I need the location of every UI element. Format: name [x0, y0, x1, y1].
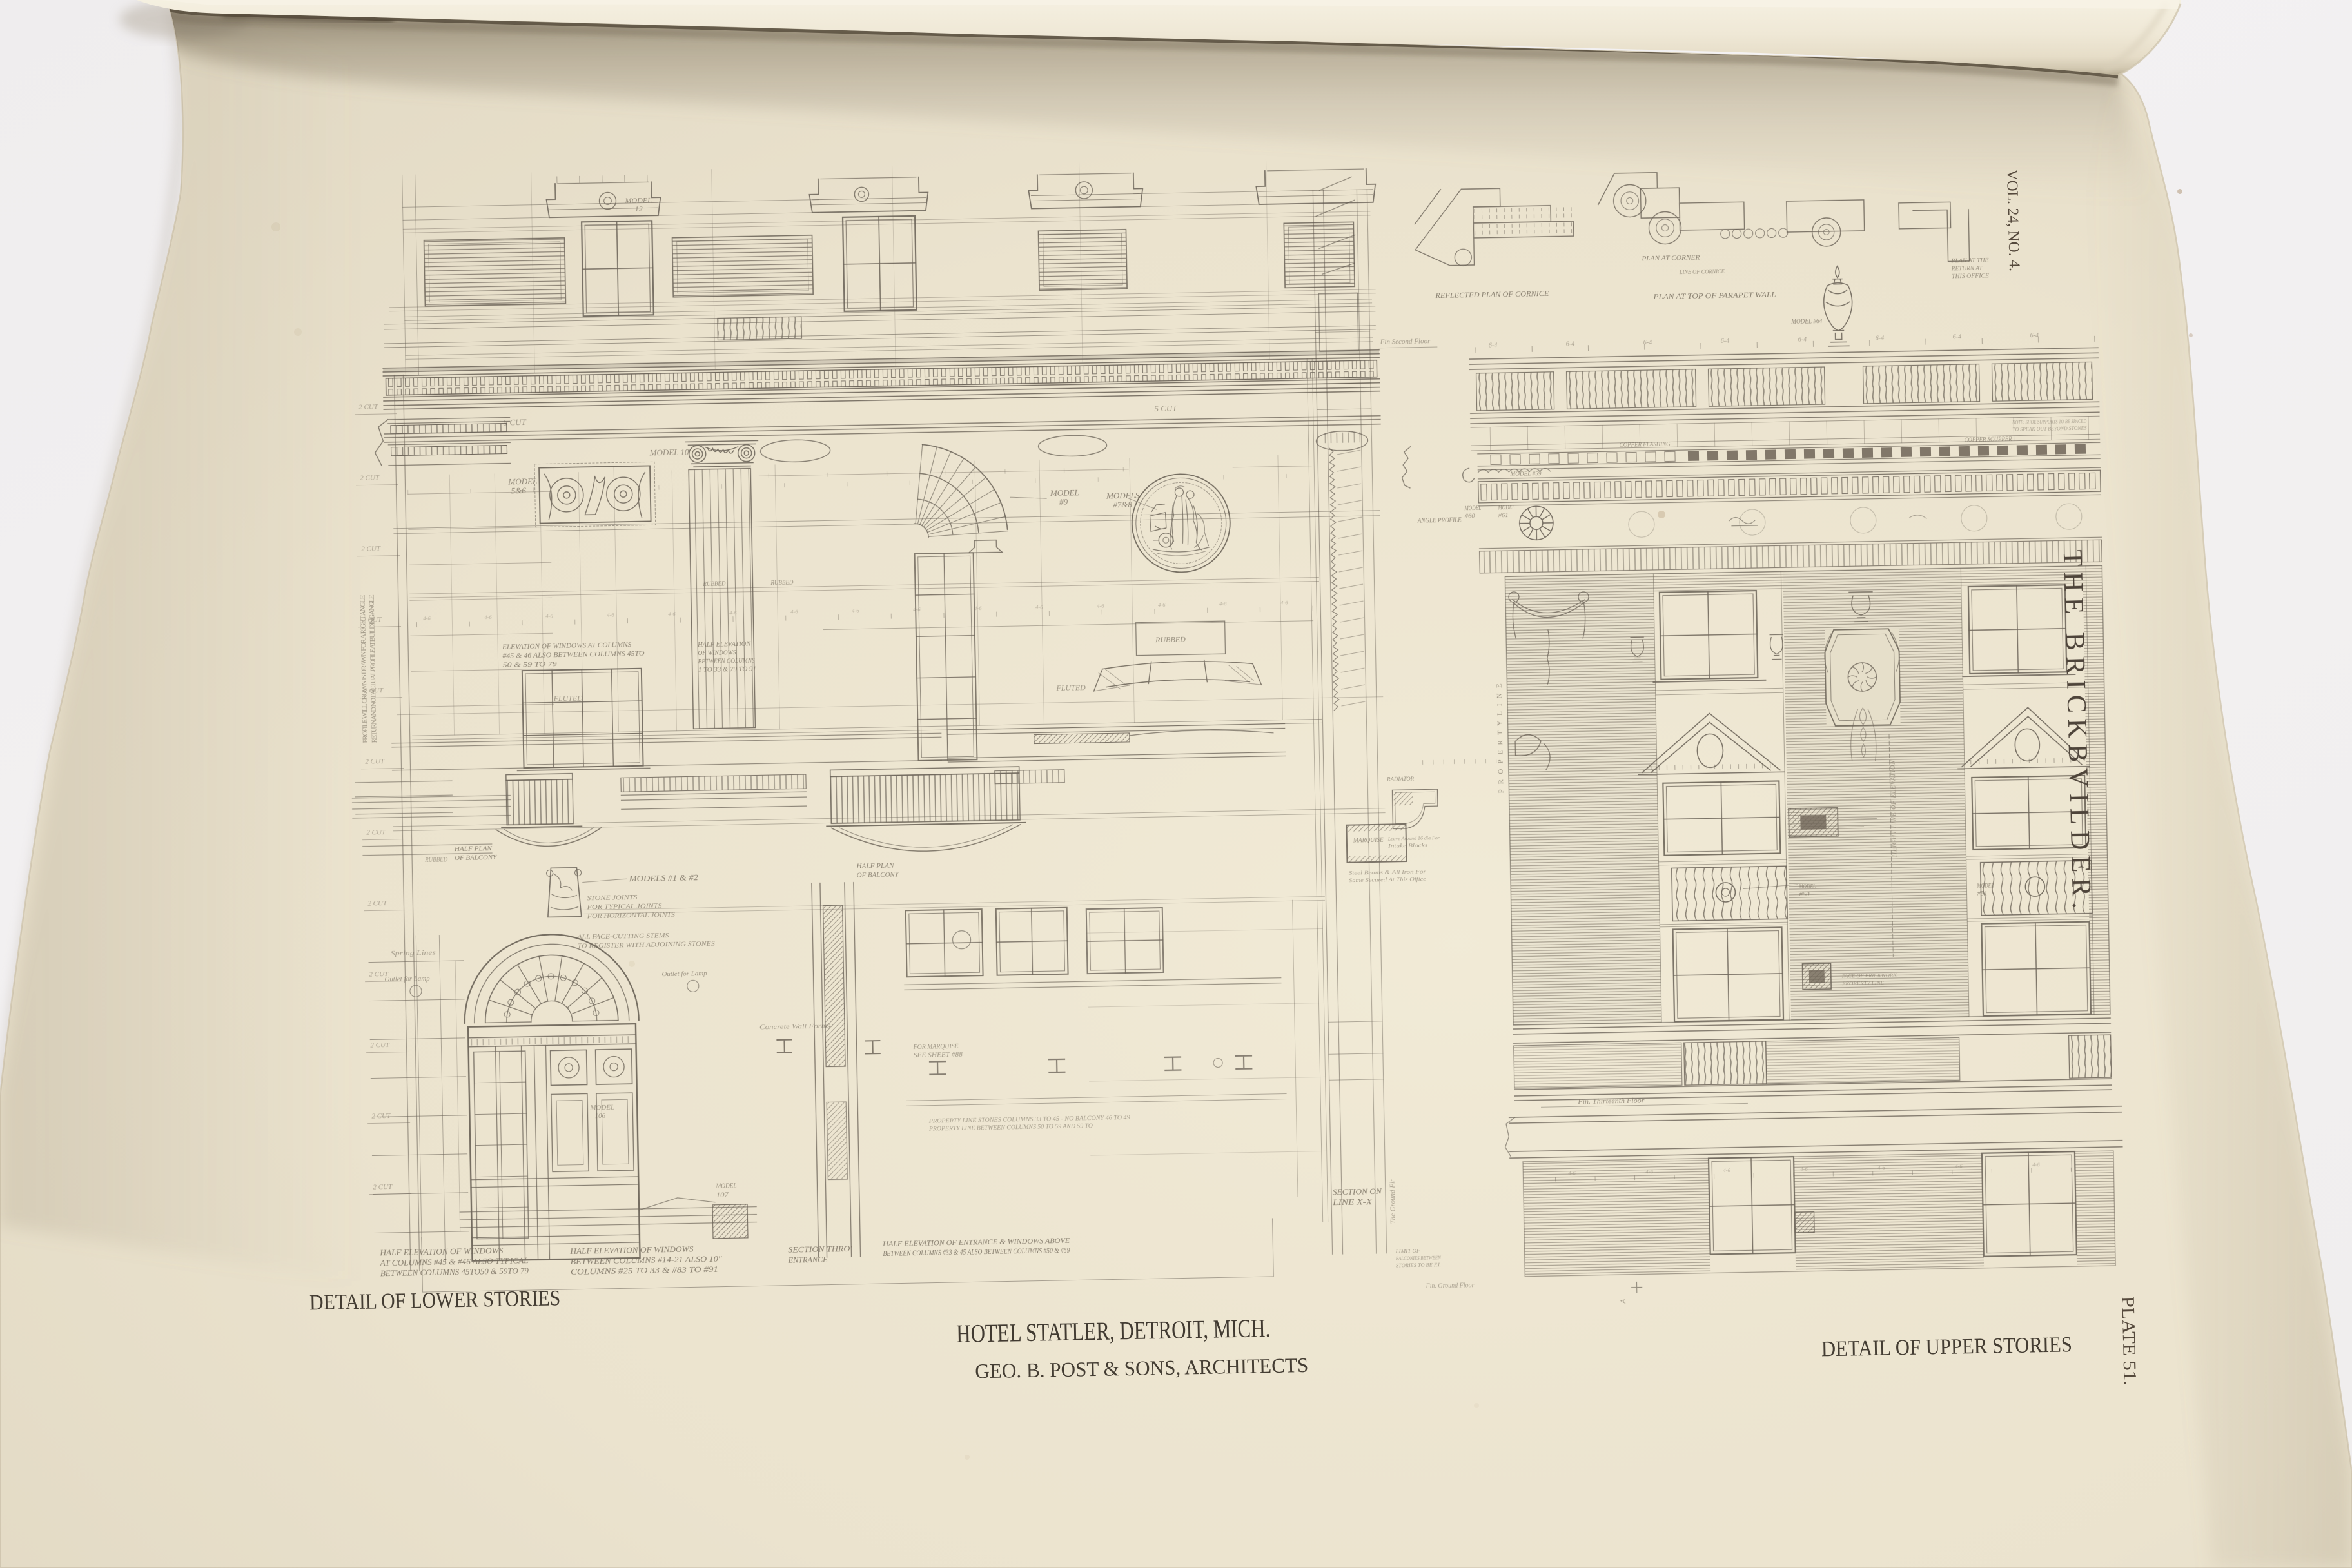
- svg-text:6-4: 6-4: [2030, 332, 2039, 339]
- svg-text:A: A: [1618, 1298, 1627, 1304]
- svg-text:2 CUT: 2 CUT: [373, 1183, 393, 1191]
- svg-text:4-6: 4-6: [1568, 1170, 1576, 1176]
- svg-text:BALCONIES BETWEEN: BALCONIES BETWEEN: [1396, 1255, 1442, 1261]
- svg-text:STONE JOINTS: STONE JOINTS: [587, 894, 638, 902]
- svg-text:ENTRANCE: ENTRANCE: [788, 1255, 828, 1265]
- svg-text:MARQUISE: MARQUISE: [1353, 837, 1384, 845]
- svg-text:RUBBED: RUBBED: [702, 580, 726, 588]
- svg-text:6-4: 6-4: [1953, 333, 1962, 340]
- svg-text:5&6: 5&6: [511, 485, 527, 495]
- svg-text:Leave Around 16 dia For: Leave Around 16 dia For: [1387, 835, 1440, 841]
- svg-text:RUBBED: RUBBED: [770, 579, 794, 587]
- svg-text:MODEL #59: MODEL #59: [1509, 470, 1542, 477]
- svg-text:PLAN AT THE: PLAN AT THE: [1950, 257, 1989, 264]
- svg-text:FLUTED: FLUTED: [553, 693, 583, 703]
- svg-text:4-6: 4-6: [729, 609, 737, 616]
- svg-text:4-6: 4-6: [484, 614, 492, 620]
- svg-text:OF WINDOWS: OF WINDOWS: [698, 649, 736, 657]
- svg-text:MODELS #1 & #2: MODELS #1 & #2: [629, 872, 699, 883]
- svg-text:FACE OF BRICKWORK: FACE OF BRICKWORK: [1841, 972, 1898, 979]
- svg-text:6-4: 6-4: [1798, 337, 1807, 344]
- svg-text:4-6: 4-6: [1645, 1168, 1653, 1175]
- svg-text:#51: #51: [1977, 890, 1987, 897]
- svg-text:LINE OF CORNICE: LINE OF CORNICE: [1679, 268, 1725, 275]
- svg-text:ANGLE PROFILE: ANGLE PROFILE: [1417, 516, 1462, 524]
- svg-text:SEE SHEET #88: SEE SHEET #88: [914, 1052, 963, 1059]
- svg-text:MODEL: MODEL: [1464, 505, 1482, 511]
- svg-text:MODEL: MODEL: [1798, 883, 1816, 889]
- svg-text:OF BALCONY: OF BALCONY: [857, 870, 900, 879]
- svg-text:MODEL: MODEL: [589, 1104, 614, 1112]
- svg-text:5 CUT: 5 CUT: [1154, 403, 1177, 413]
- svg-text:4-6: 4-6: [913, 606, 921, 612]
- svg-text:HALF PLAN: HALF PLAN: [856, 862, 894, 870]
- svg-text:2 CUT: 2 CUT: [367, 899, 387, 908]
- svg-text:DETAIL OF LOWER STORIES: DETAIL OF LOWER STORIES: [309, 1286, 561, 1315]
- svg-text:4-6: 4-6: [1280, 599, 1288, 605]
- svg-text:OF BALCONY: OF BALCONY: [455, 854, 498, 862]
- svg-text:2 CUT: 2 CUT: [365, 758, 385, 766]
- svg-text:2 CUT: 2 CUT: [360, 474, 380, 482]
- svg-text:PLATE 51.: PLATE 51.: [2117, 1296, 2140, 1386]
- svg-text:MODEL: MODEL: [1498, 504, 1515, 511]
- svg-text:#50: #50: [1799, 891, 1810, 897]
- svg-text:VOL. 24, NO. 4.: VOL. 24, NO. 4.: [2003, 170, 2023, 272]
- svg-text:4-6: 4-6: [974, 605, 982, 611]
- svg-text:Fin. Thirteenth Floor: Fin. Thirteenth Floor: [1577, 1095, 1645, 1106]
- svg-text:RUBBED: RUBBED: [424, 856, 448, 864]
- svg-text:4-6: 4-6: [545, 612, 553, 619]
- svg-text:LINE X-X: LINE X-X: [1332, 1197, 1373, 1207]
- svg-text:THIS OFFICE: THIS OFFICE: [1952, 272, 1990, 279]
- svg-text:4-6: 4-6: [607, 611, 614, 618]
- svg-text:The Ground Flr: The Ground Flr: [1388, 1179, 1396, 1224]
- svg-text:4-6: 4-6: [423, 615, 431, 622]
- svg-text:FLUTED: FLUTED: [1055, 683, 1086, 692]
- svg-text:6-4: 6-4: [1643, 339, 1652, 346]
- svg-text:4-6: 4-6: [2032, 1161, 2040, 1168]
- svg-text:#61: #61: [1498, 512, 1509, 518]
- svg-text:4-6: 4-6: [1877, 1164, 1885, 1171]
- svg-text:6-4: 6-4: [1721, 338, 1730, 345]
- svg-text:12: 12: [635, 204, 643, 213]
- svg-text:MODEL: MODEL: [716, 1182, 737, 1190]
- svg-text:1 TO 33 & 79 TO 91: 1 TO 33 & 79 TO 91: [698, 665, 756, 674]
- svg-text:4-6: 4-6: [790, 608, 798, 614]
- svg-text:Fin Second Floor: Fin Second Floor: [1380, 337, 1431, 346]
- svg-text:6-4: 6-4: [1876, 335, 1885, 342]
- svg-text:4-6: 4-6: [1955, 1162, 1963, 1169]
- svg-text:2 CUT: 2 CUT: [361, 545, 381, 553]
- svg-text:BETWEEN COLUMNS: BETWEEN COLUMNS: [698, 658, 755, 666]
- svg-text:HALF ELEVATION: HALF ELEVATION: [697, 641, 752, 649]
- svg-text:6-4: 6-4: [1489, 342, 1498, 349]
- svg-text:COPPER FLASHING: COPPER FLASHING: [1620, 440, 1671, 447]
- svg-text:Intake Blocks: Intake Blocks: [1387, 842, 1428, 848]
- svg-text:2 CUT: 2 CUT: [358, 403, 378, 411]
- svg-text:6-4: 6-4: [1566, 340, 1575, 348]
- svg-text:MODEL #64: MODEL #64: [1790, 318, 1822, 326]
- svg-text:Outlet for Lamp: Outlet for Lamp: [661, 970, 707, 978]
- svg-text:DETAIL OF UPPER STORIES: DETAIL OF UPPER STORIES: [1821, 1333, 2073, 1361]
- svg-text:SECTION ON: SECTION ON: [1333, 1186, 1383, 1197]
- svg-text:STORIES TO BE F.I.: STORIES TO BE F.I.: [1396, 1262, 1441, 1268]
- svg-text:4-6: 4-6: [1097, 603, 1104, 609]
- svg-text:4-6: 4-6: [1158, 602, 1166, 608]
- svg-text:#60: #60: [1465, 513, 1476, 519]
- svg-text:MODEL 10: MODEL 10: [649, 447, 690, 457]
- svg-text:4-6: 4-6: [1723, 1167, 1730, 1173]
- svg-text:Fin. Ground Floor: Fin. Ground Floor: [1425, 1282, 1474, 1289]
- svg-text:2 CUT: 2 CUT: [371, 1112, 391, 1121]
- svg-text:107: 107: [716, 1191, 729, 1199]
- svg-text:4-6: 4-6: [1035, 603, 1043, 610]
- svg-text:4-6: 4-6: [852, 607, 859, 614]
- svg-text:106: 106: [594, 1112, 605, 1120]
- svg-text:2 CUT: 2 CUT: [366, 828, 386, 837]
- svg-text:LIMIT OF: LIMIT OF: [1395, 1248, 1420, 1255]
- svg-text:COPPER SCUPPER: COPPER SCUPPER: [1965, 436, 2013, 443]
- svg-text:Outlet for Lamp: Outlet for Lamp: [384, 975, 429, 983]
- svg-text:FOR MARQUISE: FOR MARQUISE: [913, 1043, 959, 1051]
- svg-text:RETURN AT: RETURN AT: [1951, 264, 1983, 271]
- svg-text:SECTION THRO': SECTION THRO': [788, 1244, 852, 1255]
- svg-text:PLAN AT CORNER: PLAN AT CORNER: [1641, 254, 1700, 263]
- svg-text:RADIATOR: RADIATOR: [1386, 776, 1415, 783]
- svg-text:Concrete Wall Forms: Concrete Wall Forms: [759, 1023, 830, 1031]
- svg-text:#7&8: #7&8: [1113, 500, 1132, 510]
- svg-text:HOTEL STATLER, DETROIT, MICH.: HOTEL STATLER, DETROIT, MICH.: [956, 1313, 1271, 1348]
- svg-text:RUBBED: RUBBED: [1155, 634, 1186, 644]
- svg-text:4-6: 4-6: [1219, 600, 1227, 607]
- svg-text:4-6: 4-6: [1800, 1166, 1808, 1172]
- svg-text:Spring Lines: Spring Lines: [391, 950, 436, 957]
- svg-text:#9: #9: [1059, 497, 1068, 507]
- svg-text:PROPERTY LINE: PROPERTY LINE: [1841, 979, 1885, 986]
- svg-text:HALF PLAN: HALF PLAN: [454, 845, 493, 853]
- svg-text:50 & 59 TO 79: 50 & 59 TO 79: [503, 660, 558, 669]
- svg-text:MODEL: MODEL: [1976, 882, 1994, 888]
- svg-text:2 CUT: 2 CUT: [370, 1041, 390, 1050]
